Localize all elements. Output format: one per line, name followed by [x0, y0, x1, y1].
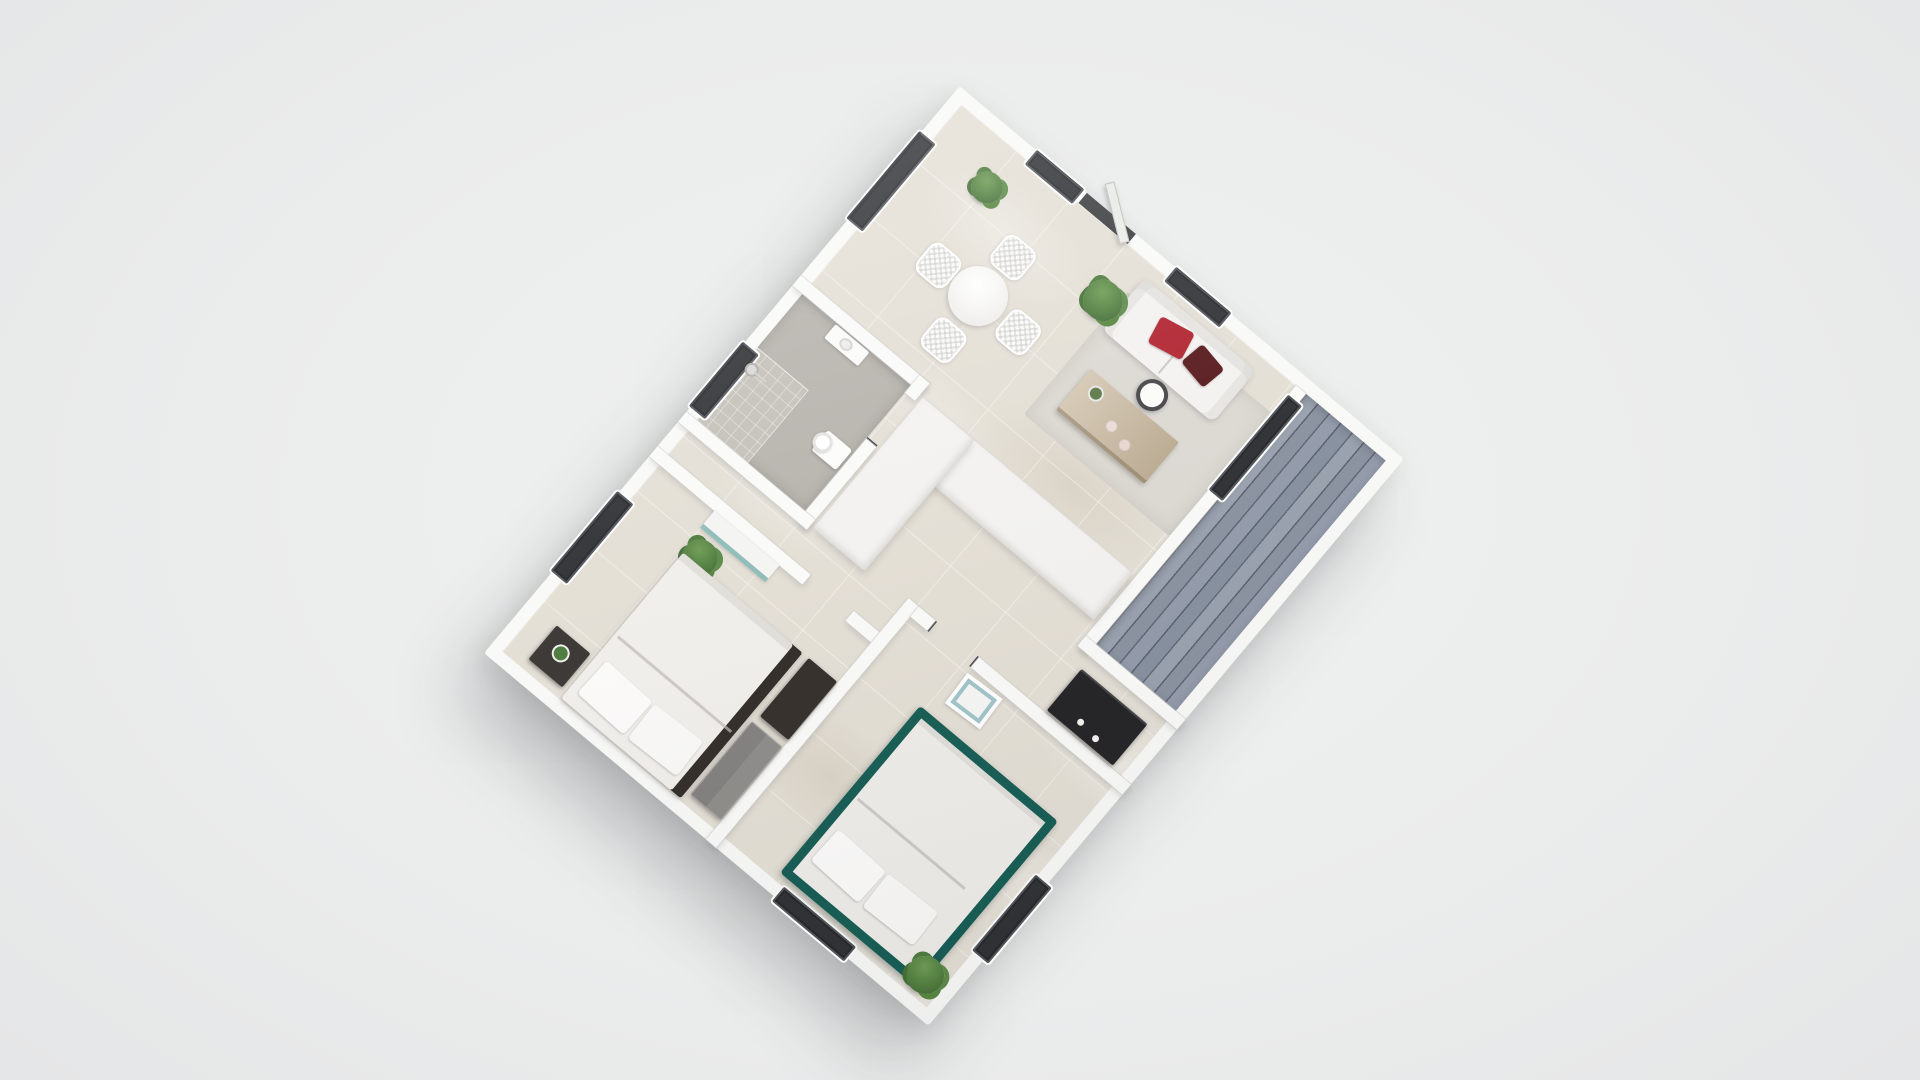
apartment-plan [484, 86, 1404, 1026]
floor-plan-render [0, 0, 1920, 1080]
